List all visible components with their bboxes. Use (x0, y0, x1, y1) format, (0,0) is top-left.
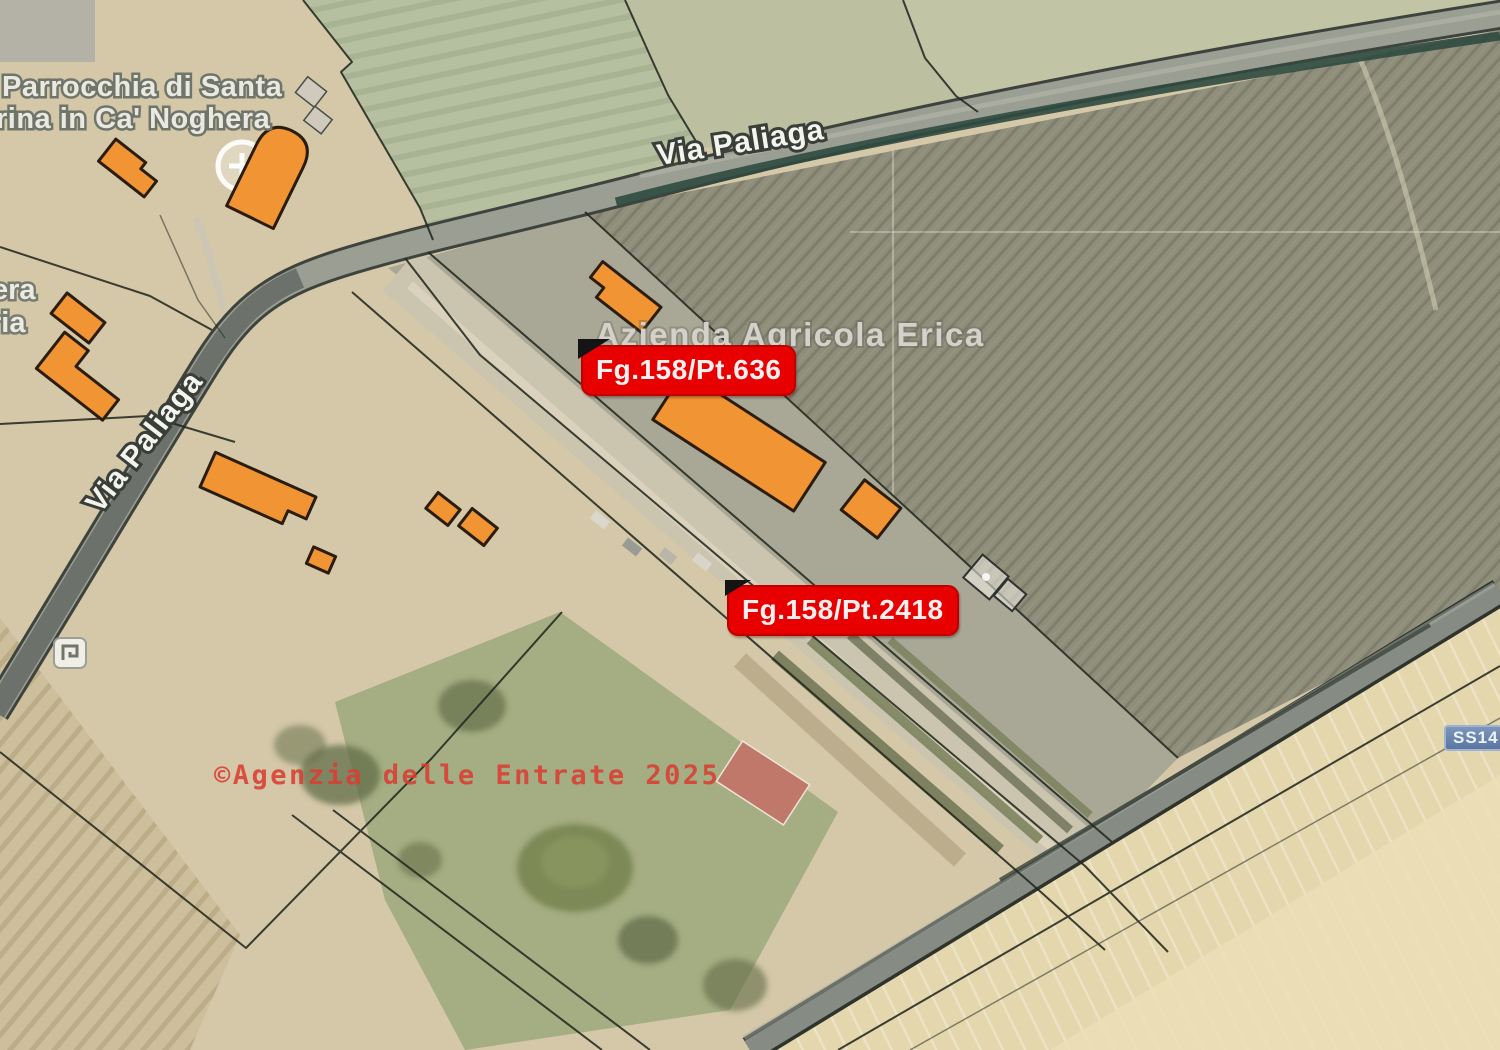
map-canvas[interactable]: Parrocchia di Santa rina in Ca' Noghera … (0, 0, 1500, 1050)
copyright-watermark: ©Agenzia delle Entrate 2025 (214, 760, 720, 791)
place-label-parrocchia-line2: rina in Ca' Noghera (0, 103, 271, 135)
parcel-label-text: Fg.158/Pt.636 (596, 354, 781, 385)
road-badge-ss14: SS14 (1444, 725, 1500, 751)
building (36, 332, 131, 420)
parcel-label-fg158-pt2418[interactable]: Fg.158/Pt.2418 (727, 585, 959, 636)
building (99, 139, 162, 197)
place-label-parrocchia-line1: Parrocchia di Santa (2, 71, 283, 103)
monument-icon (54, 638, 86, 668)
building (459, 508, 498, 545)
parcel-label-text: Fg.158/Pt.2418 (742, 594, 944, 625)
building (51, 293, 105, 343)
building (426, 493, 460, 526)
satellite-map: Parrocchia di Santa rina in Ca' Noghera … (0, 0, 1500, 1050)
building (306, 547, 335, 573)
place-label-fragment-era: era (0, 274, 36, 306)
parcel-label-fg158-pt636[interactable]: Fg.158/Pt.636 (581, 345, 796, 396)
building (200, 452, 316, 531)
place-label-fragment-ria: ria (0, 307, 26, 339)
